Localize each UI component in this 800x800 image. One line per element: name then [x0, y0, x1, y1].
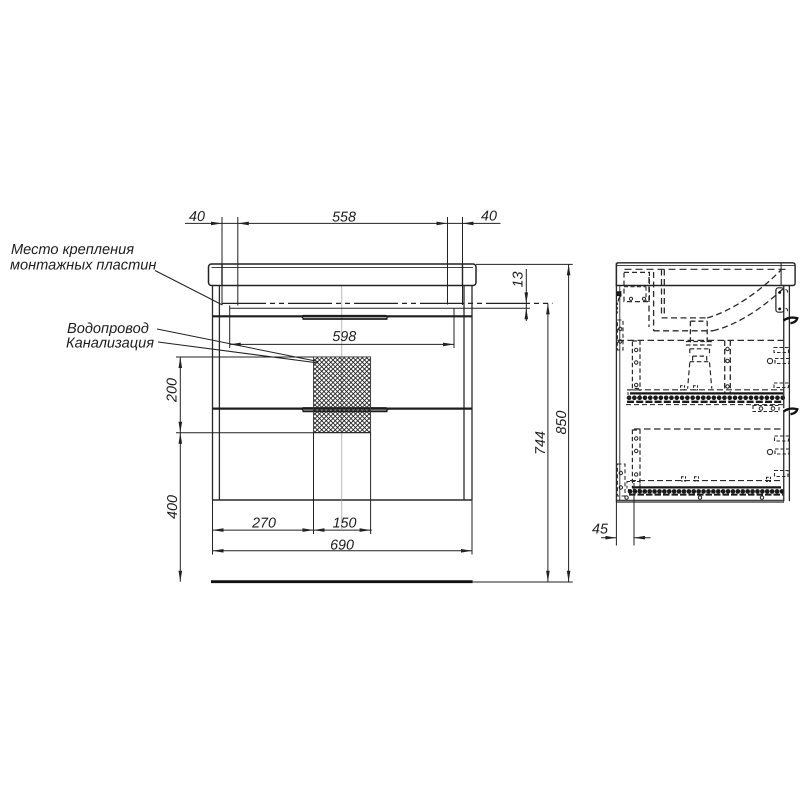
svg-text:45: 45: [592, 522, 608, 538]
svg-text:монтажных пластин: монтажных пластин: [10, 258, 156, 274]
svg-text:13: 13: [511, 272, 527, 288]
svg-text:850: 850: [554, 411, 570, 435]
svg-text:40: 40: [481, 209, 497, 225]
svg-text:Канализация: Канализация: [66, 336, 154, 352]
svg-text:270: 270: [251, 516, 276, 532]
svg-text:598: 598: [332, 329, 356, 345]
svg-text:40: 40: [189, 209, 205, 225]
svg-text:Место крепления: Место крепления: [11, 242, 134, 258]
svg-text:150: 150: [333, 516, 357, 532]
svg-text:558: 558: [332, 210, 356, 226]
svg-text:690: 690: [330, 538, 354, 554]
svg-text:744: 744: [533, 431, 549, 455]
svg-text:400: 400: [165, 495, 181, 519]
svg-text:200: 200: [165, 378, 181, 403]
